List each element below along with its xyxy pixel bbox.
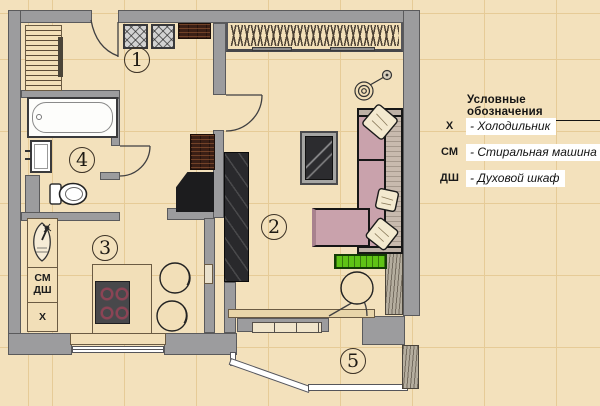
kitchen-chair-2 bbox=[157, 301, 187, 331]
wall-hall-divider bbox=[213, 23, 226, 95]
wall-wardrobe-stub bbox=[224, 282, 236, 333]
radiator bbox=[252, 322, 322, 333]
floor-plan: СМ ДШ Х 1 2 3 4 5 Условные обозначения Х… bbox=[0, 0, 600, 406]
entrance-door bbox=[91, 20, 118, 57]
balcony-window-bottom bbox=[308, 384, 408, 391]
legend-abbr-fridge: Х bbox=[436, 120, 463, 132]
washer-label: СМ bbox=[34, 272, 50, 284]
room-label-balcony: 5 bbox=[340, 348, 366, 374]
stove bbox=[95, 281, 130, 324]
balcony-window-diagonal bbox=[229, 358, 311, 393]
room-label-bathroom: 4 bbox=[69, 147, 95, 173]
fridge-label: Х bbox=[39, 311, 46, 323]
washbasin bbox=[30, 140, 52, 173]
room-number-5: 5 bbox=[347, 350, 359, 372]
closet-hangers bbox=[230, 25, 399, 46]
niche-cabinet bbox=[190, 134, 215, 170]
oven-label: ДШ bbox=[33, 284, 51, 296]
toilet bbox=[50, 184, 87, 205]
sofa-chaise bbox=[312, 208, 370, 247]
bathtub-drain bbox=[36, 114, 42, 120]
room-label-hall: 1 bbox=[124, 47, 150, 73]
closet-door-handle-right bbox=[330, 47, 375, 51]
floor-lamp bbox=[355, 71, 392, 101]
niche-shadow bbox=[176, 172, 214, 212]
kitchen-chair-1 bbox=[160, 263, 190, 293]
planter bbox=[334, 254, 387, 269]
bathroom-door bbox=[120, 146, 150, 176]
room-number-4: 4 bbox=[76, 149, 88, 171]
sofa-backrest bbox=[384, 110, 403, 254]
kitchen-cabinet-column: СМ ДШ Х bbox=[27, 218, 58, 330]
wall-top-right bbox=[118, 10, 420, 23]
dark-wardrobe bbox=[224, 152, 249, 282]
wall-bottom-left bbox=[8, 333, 72, 355]
living-room-door bbox=[226, 95, 262, 131]
room-number-2: 2 bbox=[268, 216, 280, 238]
desk-chair bbox=[341, 272, 373, 304]
legend-label-washer: - Стиральная машина bbox=[466, 144, 600, 161]
faucet-tick-2 bbox=[25, 158, 31, 160]
washbasin-inner bbox=[34, 144, 48, 169]
legend-abbr-washer: СМ bbox=[436, 146, 463, 158]
wall-bottom-mid bbox=[164, 333, 237, 355]
sofa-armrest-top bbox=[357, 108, 403, 117]
room-number-3: 3 bbox=[99, 237, 111, 259]
legend-title: Условные обозначения bbox=[467, 94, 600, 121]
faucet-tick-1 bbox=[25, 150, 31, 152]
balcony-wall-section bbox=[402, 345, 419, 389]
kitchen-window bbox=[72, 346, 164, 353]
tall-cabinet bbox=[385, 253, 403, 315]
washer-oven-cabinet: СМ ДШ bbox=[27, 267, 58, 303]
sofa-cushion-divider bbox=[357, 159, 386, 161]
legend-label-oven: - Духовой шкаф bbox=[466, 170, 565, 187]
wall-bath-stub bbox=[100, 172, 120, 180]
kitchen-door-leaf bbox=[204, 264, 213, 284]
wardrobe-sliding-door bbox=[58, 37, 63, 77]
desk bbox=[228, 309, 375, 318]
sofa-armrest-bottom bbox=[357, 246, 403, 254]
pouf-left bbox=[123, 24, 148, 49]
hall-wardrobe bbox=[25, 25, 62, 91]
tv-screen bbox=[305, 136, 333, 180]
fridge-cabinet: Х bbox=[27, 302, 58, 332]
room-label-living: 2 bbox=[261, 214, 287, 240]
tv bbox=[300, 131, 338, 185]
sink-cabinet bbox=[27, 218, 58, 268]
room-number-1: 1 bbox=[131, 49, 143, 71]
bathtub-inner bbox=[32, 102, 113, 133]
closet-door-handle-left bbox=[252, 47, 292, 51]
room-label-kitchen: 3 bbox=[92, 235, 118, 261]
hall-shelf bbox=[178, 23, 211, 39]
wall-left bbox=[8, 10, 21, 355]
duct-box bbox=[25, 175, 40, 213]
wall-room2-bottom-right bbox=[362, 316, 405, 345]
kitchen-window-sill bbox=[70, 333, 166, 345]
pouf-right bbox=[151, 24, 175, 49]
legend-abbr-oven: ДШ bbox=[436, 172, 463, 184]
legend-label-fridge: - Холодильник bbox=[466, 118, 556, 135]
wall-right bbox=[403, 10, 420, 316]
